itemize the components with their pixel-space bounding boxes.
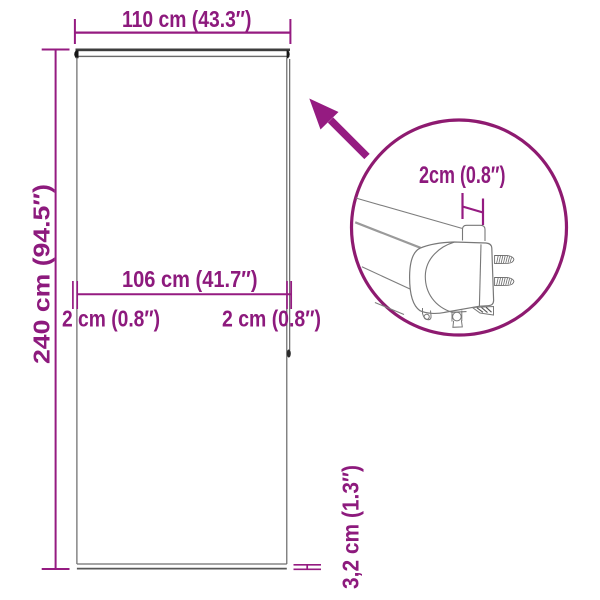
svg-text:110 cm (43.3″): 110 cm (43.3″): [122, 6, 252, 32]
svg-text:3,2 cm (1.3″): 3,2 cm (1.3″): [338, 465, 364, 589]
svg-text:2cm (0.8″): 2cm (0.8″): [419, 162, 506, 189]
svg-text:240 cm (94.5″): 240 cm (94.5″): [29, 184, 55, 364]
svg-text:106 cm (41.7″): 106 cm (41.7″): [122, 266, 258, 292]
svg-text:2 cm (0.8″): 2 cm (0.8″): [62, 306, 160, 332]
svg-text:2 cm (0.8″): 2 cm (0.8″): [222, 306, 321, 332]
